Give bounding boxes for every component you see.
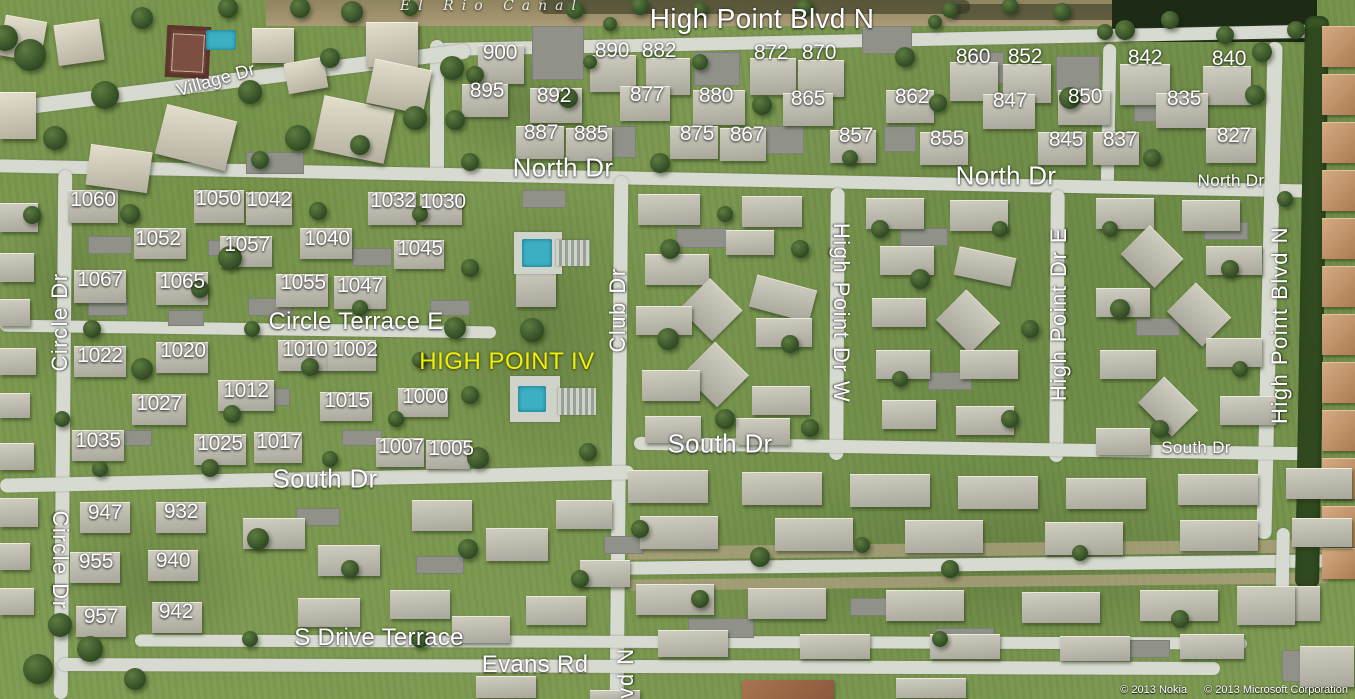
tree <box>650 153 670 173</box>
building <box>1203 66 1251 105</box>
building-number: 840 <box>1212 47 1246 71</box>
building-number: 1050 <box>195 187 241 211</box>
area-label-high-point-iv: HIGH POINT IV <box>419 348 594 376</box>
building <box>958 476 1038 509</box>
tree <box>1097 24 1113 40</box>
building-number: 1065 <box>159 270 205 294</box>
building <box>742 472 822 505</box>
building-number: 1032 <box>370 189 416 213</box>
building-number: 955 <box>79 550 113 574</box>
tree <box>1053 3 1071 21</box>
tree <box>660 239 680 259</box>
parking-lot <box>676 228 728 248</box>
tree <box>781 335 799 353</box>
tree <box>871 220 889 238</box>
building-number: 1035 <box>75 429 121 453</box>
street-label-high-point-dr-w: High Point Dr W <box>828 223 854 403</box>
street-label-club-dr: Club Dr <box>605 267 631 352</box>
tree <box>603 17 617 31</box>
building-number: 1015 <box>324 389 370 413</box>
building <box>882 400 936 429</box>
building <box>1292 518 1352 547</box>
tree <box>1287 21 1305 39</box>
street-label-south-dr-far-east: South Dr <box>1161 438 1231 458</box>
parking-lot <box>168 310 204 326</box>
building <box>628 470 708 503</box>
white-building <box>85 144 152 193</box>
tree <box>1252 42 1272 62</box>
tree <box>92 461 108 477</box>
building-number: 1052 <box>135 227 181 251</box>
building-number: 1042 <box>246 188 292 212</box>
building-number: 1000 <box>402 385 448 409</box>
building <box>0 543 30 570</box>
building-number: 1067 <box>77 268 123 292</box>
tree <box>444 317 466 339</box>
tree <box>929 94 947 112</box>
tan-roof-house <box>1322 122 1355 163</box>
building-number: 1007 <box>378 435 424 459</box>
building-number: 1017 <box>256 430 302 454</box>
tree <box>131 7 153 29</box>
tan-roof-house <box>1322 362 1355 403</box>
tan-roof-house <box>1322 266 1355 307</box>
tree <box>520 318 544 342</box>
white-building <box>53 19 104 66</box>
tree <box>461 259 479 277</box>
parking-lot <box>522 190 566 208</box>
building <box>960 350 1018 379</box>
white-building <box>0 92 36 139</box>
building-number: 1022 <box>77 344 123 368</box>
tree <box>631 520 649 538</box>
tree <box>223 405 241 423</box>
building-number: 932 <box>164 500 198 524</box>
building <box>1100 350 1156 379</box>
building <box>0 393 30 418</box>
building-number: 835 <box>1167 87 1201 111</box>
building <box>752 386 810 415</box>
building <box>954 246 1017 286</box>
tan-roof-house <box>1322 26 1355 67</box>
tree <box>1216 26 1234 44</box>
tree <box>440 56 464 80</box>
tan-roof-house <box>1322 218 1355 259</box>
building-number: 850 <box>1068 85 1102 109</box>
building <box>1286 468 1352 499</box>
building <box>749 275 817 323</box>
tree <box>842 150 858 166</box>
building <box>896 678 966 698</box>
tree <box>1277 191 1293 207</box>
tree <box>895 47 915 67</box>
street-label-north-dr-west: North Dr <box>513 153 614 184</box>
building <box>726 230 774 255</box>
street-label-evans-rd: Evans Rd <box>482 651 588 679</box>
tree <box>54 411 70 427</box>
building <box>1180 520 1258 551</box>
tree <box>1171 610 1189 628</box>
tree <box>247 528 269 550</box>
tree <box>752 95 772 115</box>
tree <box>131 358 153 380</box>
street-label-circle-dr-south: Circle Dr <box>47 510 73 609</box>
building-number: 867 <box>730 123 764 147</box>
tan-roof-house <box>1322 74 1355 115</box>
building-number: 877 <box>630 83 664 107</box>
street-label-south-dr-west: South Dr <box>272 464 377 495</box>
building-number: 1025 <box>197 432 243 456</box>
tree <box>1110 299 1130 319</box>
building <box>1237 586 1295 625</box>
building <box>412 500 472 531</box>
building-number: 1055 <box>280 271 326 295</box>
building <box>658 630 728 657</box>
canal-debris <box>950 4 1120 20</box>
tree <box>1232 361 1248 377</box>
building <box>1121 225 1184 288</box>
building-number: 862 <box>895 85 929 109</box>
tree <box>23 654 53 684</box>
tree <box>91 81 119 109</box>
street-label-circle-terrace-e: Circle Terrace E <box>268 308 443 336</box>
white-building <box>155 104 237 171</box>
street-label-s-drive-terrace: S Drive Terrace <box>294 624 463 652</box>
building <box>556 500 612 529</box>
building <box>1178 474 1258 505</box>
building <box>0 348 36 375</box>
tree <box>571 570 589 588</box>
street-label-el-rio-canal: El Rio Canal <box>400 0 584 14</box>
shuffleboard-courts <box>556 240 590 266</box>
parking-lot <box>352 248 392 266</box>
street-label-blvd-n-partial: vd N <box>613 647 639 698</box>
building-number: 1030 <box>420 190 466 214</box>
tree <box>403 106 427 130</box>
tree <box>1221 260 1239 278</box>
tree <box>218 0 238 18</box>
building <box>645 254 709 285</box>
tree <box>1021 320 1039 338</box>
building-number: 942 <box>159 600 193 624</box>
building-number: 855 <box>930 127 964 151</box>
tree <box>1102 221 1118 237</box>
tree <box>48 613 72 637</box>
building-number: 900 <box>483 41 517 65</box>
attribution-microsoft: © 2013 Microsoft Corporation <box>1204 684 1348 696</box>
tree <box>120 204 140 224</box>
building <box>742 196 802 227</box>
tree <box>1143 149 1161 167</box>
tan-roof-house <box>1322 410 1355 451</box>
building-number: 870 <box>802 41 836 65</box>
tree <box>657 328 679 350</box>
street-label-circle-dr-north: Circle Dr <box>47 272 73 371</box>
building-number: 865 <box>791 87 825 111</box>
tree <box>124 668 146 690</box>
swimming-pool <box>518 386 546 412</box>
tree <box>244 321 260 337</box>
building <box>1066 478 1146 509</box>
tree <box>692 54 708 70</box>
tree <box>14 39 46 71</box>
tree <box>341 1 363 23</box>
tree <box>791 240 809 258</box>
tree <box>461 386 479 404</box>
building-number: 1060 <box>70 188 116 212</box>
building-number: 872 <box>754 41 788 65</box>
tree <box>445 110 465 130</box>
street-label-north-dr-east: North Dr <box>956 161 1057 192</box>
building-number: 875 <box>680 122 714 146</box>
building <box>640 516 718 549</box>
building-number: 880 <box>699 84 733 108</box>
tree <box>242 631 258 647</box>
building-number: 1047 <box>337 274 383 298</box>
orange-roof-building <box>742 680 834 699</box>
tree <box>341 560 359 578</box>
tree <box>854 537 870 553</box>
tree <box>932 631 948 647</box>
building-number: 857 <box>839 124 873 148</box>
street-label-high-point-blvd-n-side: High Point Blvd N <box>1267 226 1293 424</box>
tree <box>309 202 327 220</box>
building-number: 885 <box>574 122 608 146</box>
tree <box>941 560 959 578</box>
tree <box>238 80 262 104</box>
tree <box>992 221 1008 237</box>
building <box>872 298 926 327</box>
shuffleboard-courts <box>558 388 596 415</box>
building-number: 957 <box>84 605 118 629</box>
building-number: 1002 <box>332 338 378 362</box>
tree <box>1151 420 1169 438</box>
tree <box>201 459 219 477</box>
tree <box>461 153 479 171</box>
tree <box>1245 85 1265 105</box>
tree <box>928 15 942 29</box>
parking-lot <box>900 228 948 246</box>
building-number: 1057 <box>224 233 270 257</box>
parking-lot <box>1136 318 1180 336</box>
building <box>936 289 1000 353</box>
tree <box>83 320 101 338</box>
building-number: 1005 <box>428 437 474 461</box>
tree <box>1001 410 1019 428</box>
building-number: 947 <box>88 501 122 525</box>
building <box>642 370 700 401</box>
tree <box>43 126 67 150</box>
tree <box>1161 11 1179 29</box>
attribution-nokia: © 2013 Nokia <box>1120 684 1187 696</box>
parking-lot <box>532 26 584 80</box>
tree <box>750 547 770 567</box>
parking-lot <box>850 598 890 616</box>
building <box>486 528 548 561</box>
building-number: 1027 <box>136 392 182 416</box>
tree <box>350 135 370 155</box>
road <box>58 658 1220 675</box>
building <box>1182 200 1240 231</box>
street-label-south-dr-mid: South Dr <box>667 429 772 460</box>
tennis-court-inner <box>171 33 205 73</box>
building-number: 1045 <box>397 237 443 261</box>
building <box>1180 634 1244 659</box>
tree <box>388 411 404 427</box>
tree <box>801 419 819 437</box>
building-number: 1040 <box>304 227 350 251</box>
tan-roof-house <box>1322 314 1355 355</box>
map-attribution: © 2013 Nokia © 2013 Microsoft Corporatio… <box>1120 684 1348 696</box>
tree <box>1115 20 1135 40</box>
parking-lot <box>884 126 916 152</box>
building <box>748 588 826 619</box>
building <box>0 498 38 527</box>
parking-lot <box>416 556 464 574</box>
tree <box>691 590 709 608</box>
building <box>1300 646 1354 687</box>
building <box>526 596 586 625</box>
building-number: 847 <box>993 89 1027 113</box>
tree <box>285 125 311 151</box>
tan-roof-house <box>1322 548 1355 579</box>
building-number: 940 <box>156 549 190 573</box>
building-number: 852 <box>1008 45 1042 69</box>
tree <box>910 269 930 289</box>
building <box>1022 592 1100 623</box>
building-number: 837 <box>1103 128 1137 152</box>
building-number: 860 <box>956 45 990 69</box>
building <box>905 520 983 553</box>
building-number: 1020 <box>160 339 206 363</box>
building-number: 842 <box>1128 46 1162 70</box>
tree <box>320 48 340 68</box>
tree <box>251 151 269 169</box>
building <box>1096 428 1150 455</box>
building <box>886 590 964 621</box>
building <box>775 518 853 551</box>
building <box>390 590 450 619</box>
building <box>0 299 30 326</box>
street-label-high-point-blvd-n-top: High Point Blvd N <box>650 3 875 35</box>
tree <box>458 539 478 559</box>
building-number: 827 <box>1217 124 1251 148</box>
tan-roof-house <box>1322 170 1355 211</box>
building-number: 845 <box>1049 128 1083 152</box>
tree <box>23 206 41 224</box>
building-number: 1010 <box>282 338 328 362</box>
street-label-north-dr-far-east: North Dr <box>1198 171 1265 191</box>
building-number: 895 <box>470 79 504 103</box>
building <box>800 634 870 659</box>
tree <box>942 2 958 18</box>
building-number: 892 <box>537 84 571 108</box>
building-number: 890 <box>595 39 629 63</box>
building-number: 1012 <box>223 379 269 403</box>
tree <box>77 636 103 662</box>
swimming-pool <box>206 30 236 50</box>
building <box>638 194 700 225</box>
building <box>0 588 34 615</box>
satellite-map[interactable]: © 2013 Nokia © 2013 Microsoft Corporatio… <box>0 0 1355 699</box>
building <box>0 443 34 470</box>
building <box>1060 636 1130 661</box>
parking-lot <box>604 536 644 554</box>
parking-lot <box>88 236 132 254</box>
tree <box>717 206 733 222</box>
building <box>850 474 930 507</box>
building <box>0 253 34 282</box>
building <box>298 598 360 627</box>
swimming-pool <box>522 239 552 267</box>
building-number: 887 <box>524 121 558 145</box>
white-building <box>252 28 294 63</box>
tree <box>715 409 735 429</box>
building-number: 882 <box>642 39 676 63</box>
tree <box>892 371 908 387</box>
tree <box>579 443 597 461</box>
street-label-high-point-dr-e: High Point Dr E <box>1046 227 1072 401</box>
parking-lot <box>1126 640 1170 658</box>
tree <box>1072 545 1088 561</box>
building <box>476 676 536 698</box>
